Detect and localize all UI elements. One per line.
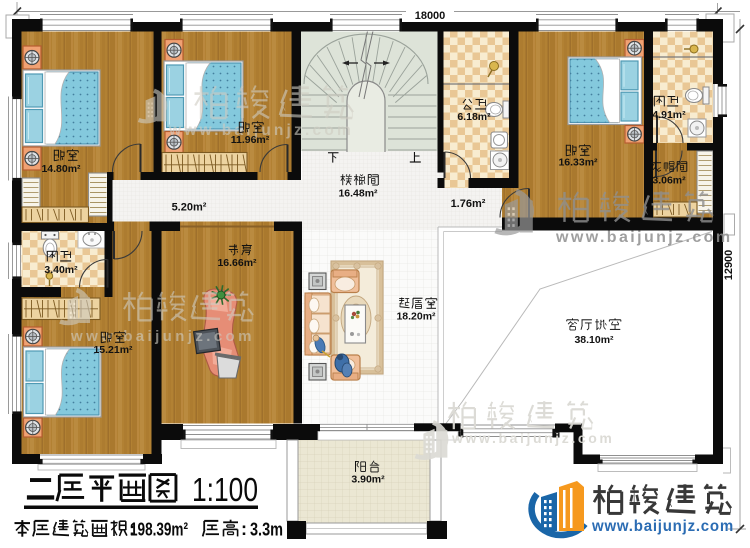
svg-text:3.90m²: 3.90m² [351, 474, 385, 486]
svg-text::: : [241, 519, 247, 539]
svg-text:www.baijunjz.com: www.baijunjz.com [451, 430, 614, 446]
svg-text:16.66m²: 16.66m² [217, 257, 257, 269]
svg-text:3.3m: 3.3m [250, 519, 283, 540]
svg-text:16.48m²: 16.48m² [338, 188, 378, 200]
svg-text:198.39m²: 198.39m² [130, 519, 188, 540]
svg-text:3.06m²: 3.06m² [652, 175, 686, 187]
svg-text:18.20m²: 18.20m² [396, 311, 436, 323]
svg-text:www.baijunjz.com: www.baijunjz.com [555, 229, 733, 246]
svg-text:38.10m²: 38.10m² [574, 334, 614, 346]
svg-text:1:100: 1:100 [192, 471, 258, 508]
svg-text:3.40m²: 3.40m² [44, 264, 78, 276]
svg-text:6.18m²: 6.18m² [457, 111, 491, 123]
svg-text:15.21m²: 15.21m² [93, 344, 133, 356]
svg-text:4.91m²: 4.91m² [652, 109, 686, 121]
svg-text:www.baijunjz.com: www.baijunjz.com [591, 518, 734, 535]
svg-text:14.80m²: 14.80m² [41, 163, 81, 175]
svg-text:12900: 12900 [723, 250, 735, 281]
svg-text:18000: 18000 [415, 10, 446, 22]
svg-text:1.76m²: 1.76m² [451, 198, 486, 210]
svg-text:11.96m²: 11.96m² [231, 134, 270, 146]
svg-text:16.33m²: 16.33m² [558, 157, 598, 169]
svg-text:www.baijunjz.com: www.baijunjz.com [70, 328, 255, 345]
svg-text:5.20m²: 5.20m² [172, 202, 207, 214]
